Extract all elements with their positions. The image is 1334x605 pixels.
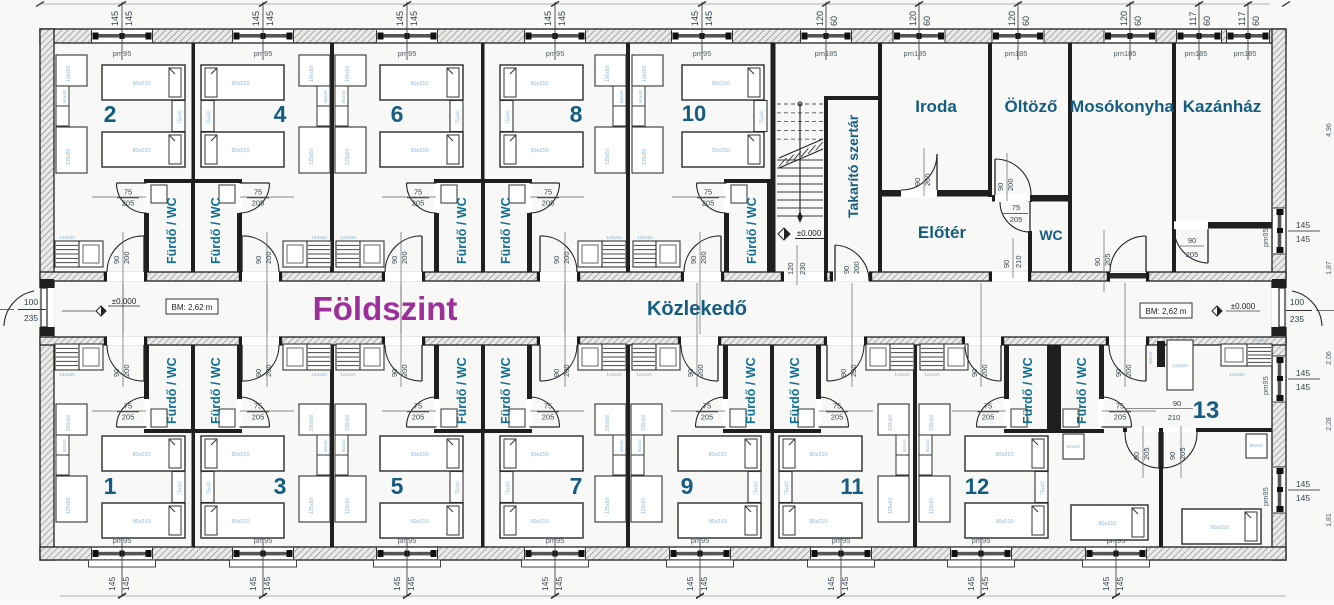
svg-text:Fürdő / WC: Fürdő / WC <box>209 357 223 424</box>
svg-text:WC: WC <box>1039 227 1062 243</box>
svg-text:145: 145 <box>1296 234 1310 244</box>
svg-text:120: 120 <box>786 262 795 275</box>
svg-text:90: 90 <box>112 369 121 377</box>
svg-text:200: 200 <box>852 261 861 274</box>
svg-text:pm95: pm95 <box>398 49 417 58</box>
svg-text:Fürdő / WC: Fürdő / WC <box>499 357 513 424</box>
svg-text:60x40: 60x40 <box>341 90 346 103</box>
svg-text:205: 205 <box>542 413 555 422</box>
svg-text:145: 145 <box>1296 382 1310 392</box>
svg-text:120x60: 120x60 <box>311 372 327 378</box>
svg-text:60x40: 60x40 <box>62 439 67 452</box>
svg-text:pm95: pm95 <box>1261 487 1270 506</box>
svg-text:pm185: pm185 <box>1234 49 1257 58</box>
svg-text:100x60: 100x60 <box>66 65 72 82</box>
svg-text:125x60: 125x60 <box>641 497 647 514</box>
svg-text:60x40: 60x40 <box>341 439 346 452</box>
svg-text:205: 205 <box>1114 413 1127 422</box>
svg-text:205: 205 <box>412 199 425 208</box>
svg-text:±0.000: ±0.000 <box>112 297 137 306</box>
svg-text:100x60: 100x60 <box>66 414 72 431</box>
svg-text:120x60: 120x60 <box>606 372 622 378</box>
svg-text:60: 60 <box>1021 16 1031 26</box>
svg-text:9: 9 <box>681 473 694 499</box>
svg-text:Fürdő / WC: Fürdő / WC <box>744 357 758 424</box>
svg-text:90x210: 90x210 <box>530 81 548 87</box>
svg-text:120: 120 <box>1119 11 1129 26</box>
svg-text:145: 145 <box>107 577 117 591</box>
svg-text:145: 145 <box>248 577 258 591</box>
svg-text:60: 60 <box>1202 16 1212 26</box>
svg-text:Fürdő / WC: Fürdő / WC <box>455 357 469 424</box>
svg-text:75x40: 75x40 <box>456 110 462 124</box>
svg-text:75: 75 <box>414 402 422 411</box>
svg-text:145: 145 <box>690 11 700 26</box>
svg-text:145: 145 <box>265 11 275 26</box>
svg-text:145: 145 <box>699 577 709 591</box>
svg-text:pm185: pm185 <box>1185 49 1208 58</box>
svg-text:BM: 2,62 m: BM: 2,62 m <box>1146 307 1187 316</box>
svg-text:pm185: pm185 <box>815 49 838 58</box>
svg-text:205: 205 <box>412 413 425 422</box>
svg-text:205: 205 <box>982 413 995 422</box>
svg-text:50x25: 50x25 <box>1148 351 1153 364</box>
svg-text:Mosókonyha: Mosókonyha <box>1070 97 1174 116</box>
svg-text:90: 90 <box>552 369 561 377</box>
svg-text:125x60: 125x60 <box>929 497 935 514</box>
svg-text:205: 205 <box>702 199 715 208</box>
svg-text:90: 90 <box>1132 452 1141 460</box>
svg-text:90: 90 <box>552 256 561 264</box>
svg-text:60x40: 60x40 <box>925 439 930 452</box>
svg-text:125x60: 125x60 <box>888 497 894 514</box>
svg-text:8: 8 <box>570 101 583 127</box>
svg-text:10: 10 <box>682 101 706 126</box>
svg-text:60x40: 60x40 <box>619 439 624 452</box>
svg-text:60x40: 60x40 <box>637 439 642 452</box>
svg-text:145: 145 <box>1296 220 1310 230</box>
svg-text:75: 75 <box>703 402 711 411</box>
svg-text:90: 90 <box>254 369 263 377</box>
svg-text:125x60: 125x60 <box>642 148 648 165</box>
svg-text:Fürdő / WC: Fürdő / WC <box>209 197 223 264</box>
svg-text:75: 75 <box>544 188 552 197</box>
svg-text:pm185: pm185 <box>1005 49 1028 58</box>
svg-text:75: 75 <box>124 188 132 197</box>
svg-text:90x210: 90x210 <box>231 148 249 154</box>
svg-text:200: 200 <box>849 364 858 377</box>
svg-text:75x40: 75x40 <box>754 481 760 495</box>
svg-text:75: 75 <box>1116 402 1124 411</box>
svg-text:205: 205 <box>831 413 844 422</box>
svg-text:90x210: 90x210 <box>809 519 827 525</box>
svg-text:145: 145 <box>409 11 419 26</box>
svg-text:90: 90 <box>689 256 698 264</box>
svg-text:90x210: 90x210 <box>132 519 150 525</box>
svg-text:6: 6 <box>391 101 404 127</box>
svg-text:90: 90 <box>842 266 851 274</box>
svg-text:145: 145 <box>251 11 261 26</box>
svg-text:90: 90 <box>913 178 922 186</box>
svg-text:100x60: 100x60 <box>929 414 935 431</box>
svg-text:145: 145 <box>685 577 695 591</box>
svg-text:75: 75 <box>544 402 552 411</box>
svg-text:1,87: 1,87 <box>1326 261 1333 275</box>
svg-text:BM: 2,62 m: BM: 2,62 m <box>172 303 213 312</box>
svg-text:145: 145 <box>121 577 131 591</box>
svg-text:Közlekedő: Közlekedő <box>647 298 747 320</box>
svg-text:145: 145 <box>543 11 553 26</box>
svg-text:125x60: 125x60 <box>66 497 72 514</box>
svg-text:90: 90 <box>1002 260 1011 268</box>
svg-text:Földszint: Földszint <box>313 290 458 327</box>
svg-text:90: 90 <box>839 369 848 377</box>
svg-text:205: 205 <box>1178 447 1187 460</box>
svg-text:100: 100 <box>1290 297 1304 307</box>
svg-text:90x210: 90x210 <box>132 148 150 154</box>
svg-text:60x40: 60x40 <box>638 90 643 103</box>
svg-text:90: 90 <box>390 256 399 264</box>
svg-text:3: 3 <box>274 473 287 499</box>
svg-text:90x210: 90x210 <box>995 519 1013 525</box>
svg-text:90x210: 90x210 <box>410 519 428 525</box>
svg-text:120x60: 120x60 <box>59 372 75 378</box>
svg-text:90x210: 90x210 <box>410 81 428 87</box>
svg-text:200: 200 <box>562 251 571 264</box>
svg-text:145: 145 <box>406 577 416 591</box>
svg-text:90: 90 <box>970 369 979 377</box>
svg-text:Iroda: Iroda <box>915 97 957 116</box>
svg-text:Fürdő / WC: Fürdő / WC <box>165 357 179 424</box>
svg-text:pm95: pm95 <box>546 49 565 58</box>
svg-text:205: 205 <box>1010 215 1023 224</box>
svg-text:90x210: 90x210 <box>132 452 150 458</box>
svg-text:90x210: 90x210 <box>995 452 1013 458</box>
svg-text:13: 13 <box>1193 397 1220 424</box>
svg-text:Fürdő / WC: Fürdő / WC <box>745 197 759 264</box>
svg-text:230: 230 <box>798 262 807 275</box>
svg-text:Fürdő / WC: Fürdő / WC <box>788 357 802 424</box>
svg-text:60: 60 <box>1251 16 1261 26</box>
svg-text:pm185: pm185 <box>1114 49 1137 58</box>
svg-text:75: 75 <box>254 402 262 411</box>
svg-text:145: 145 <box>826 577 836 591</box>
svg-text:205: 205 <box>252 413 265 422</box>
svg-text:75x40: 75x40 <box>506 481 512 495</box>
svg-text:90x210: 90x210 <box>712 81 730 87</box>
svg-text:145: 145 <box>1296 493 1310 503</box>
svg-text:210: 210 <box>1014 255 1023 268</box>
svg-text:75: 75 <box>1012 203 1020 212</box>
svg-text:90: 90 <box>1188 236 1196 245</box>
svg-text:145: 145 <box>392 577 402 591</box>
svg-text:100: 100 <box>24 297 38 307</box>
svg-text:Kazánház: Kazánház <box>1183 97 1261 116</box>
svg-text:7: 7 <box>570 473 583 499</box>
svg-text:205: 205 <box>701 413 714 422</box>
svg-text:210: 210 <box>1168 413 1181 422</box>
svg-text:145: 145 <box>840 577 850 591</box>
svg-text:60x40: 60x40 <box>619 90 624 103</box>
svg-text:100x60: 100x60 <box>888 414 894 431</box>
svg-text:145: 145 <box>1115 577 1125 591</box>
svg-text:60: 60 <box>829 16 839 26</box>
svg-text:100x60: 100x60 <box>642 65 648 82</box>
svg-text:100x60: 100x60 <box>309 65 315 82</box>
svg-text:75x40: 75x40 <box>178 110 184 124</box>
svg-text:90: 90 <box>1168 452 1177 460</box>
svg-text:120x60: 120x60 <box>311 235 327 241</box>
svg-text:100x60: 100x60 <box>345 65 351 82</box>
svg-text:145: 145 <box>966 577 976 591</box>
svg-text:120x60: 120x60 <box>637 235 653 241</box>
svg-text:205: 205 <box>252 199 265 208</box>
svg-text:117: 117 <box>1188 12 1198 26</box>
svg-text:pm95: pm95 <box>113 49 132 58</box>
svg-text:100x60: 100x60 <box>641 414 647 431</box>
svg-text:Fürdő / WC: Fürdő / WC <box>499 197 513 264</box>
svg-text:205: 205 <box>122 413 135 422</box>
svg-text:235: 235 <box>24 313 38 323</box>
svg-text:90x210: 90x210 <box>809 452 827 458</box>
svg-text:Fürdő / WC: Fürdő / WC <box>165 197 179 264</box>
svg-text:Előtér: Előtér <box>918 223 967 242</box>
svg-text:120x60: 120x60 <box>340 372 356 378</box>
svg-text:pm95: pm95 <box>693 49 712 58</box>
svg-text:60: 60 <box>922 16 932 26</box>
svg-text:Takarító szertár: Takarító szertár <box>845 114 861 218</box>
svg-text:145: 145 <box>704 11 714 26</box>
svg-text:145: 145 <box>1101 577 1111 591</box>
svg-text:1,81: 1,81 <box>1326 513 1333 527</box>
svg-text:135x60: 135x60 <box>1172 363 1188 369</box>
svg-text:117: 117 <box>1237 12 1247 26</box>
svg-text:145: 145 <box>262 577 272 591</box>
svg-text:125x60: 125x60 <box>345 497 351 514</box>
svg-text:75: 75 <box>124 402 132 411</box>
svg-text:90x210: 90x210 <box>1210 525 1228 531</box>
svg-text:205: 205 <box>1186 250 1199 259</box>
svg-text:145: 145 <box>540 577 550 591</box>
svg-text:125x60: 125x60 <box>605 148 611 165</box>
svg-text:90x210: 90x210 <box>530 148 548 154</box>
svg-text:145: 145 <box>980 577 990 591</box>
svg-text:90x210: 90x210 <box>231 452 249 458</box>
svg-text:pm185: pm185 <box>904 49 927 58</box>
svg-text:120x60: 120x60 <box>894 372 910 378</box>
svg-text:2: 2 <box>104 101 117 127</box>
svg-text:200: 200 <box>264 251 273 264</box>
svg-text:90: 90 <box>686 369 695 377</box>
svg-text:60x40: 60x40 <box>902 439 907 452</box>
svg-text:120x60: 120x60 <box>59 235 75 241</box>
svg-text:90x210: 90x210 <box>132 81 150 87</box>
svg-text:±0.000: ±0.000 <box>797 229 822 238</box>
svg-text:2,06: 2,06 <box>1326 351 1333 365</box>
svg-text:200: 200 <box>562 364 571 377</box>
svg-text:Fürdő / WC: Fürdő / WC <box>1075 357 1089 424</box>
svg-text:60x40: 60x40 <box>323 439 328 452</box>
svg-text:2,28: 2,28 <box>1326 417 1333 431</box>
svg-text:120x60: 120x60 <box>1252 338 1268 344</box>
svg-text:75x40: 75x40 <box>456 481 462 495</box>
svg-text:Fürdő / WC: Fürdő / WC <box>455 197 469 264</box>
svg-text:145: 145 <box>1296 479 1310 489</box>
svg-text:75x40: 75x40 <box>207 481 213 495</box>
svg-text:120x60: 120x60 <box>924 372 940 378</box>
svg-text:±0.000: ±0.000 <box>1231 302 1256 311</box>
svg-text:145: 145 <box>110 11 120 26</box>
svg-text:90x210: 90x210 <box>708 452 726 458</box>
svg-text:120x60: 120x60 <box>340 235 356 241</box>
svg-text:120x60: 120x60 <box>606 235 622 241</box>
svg-text:120x60: 120x60 <box>636 372 652 378</box>
svg-text:90: 90 <box>254 256 263 264</box>
svg-text:100x60: 100x60 <box>309 414 315 431</box>
svg-text:75: 75 <box>254 188 262 197</box>
svg-text:60x40: 60x40 <box>323 90 328 103</box>
svg-text:60: 60 <box>1133 16 1143 26</box>
svg-text:80x210: 80x210 <box>1098 521 1116 527</box>
svg-text:85x60: 85x60 <box>1249 443 1262 449</box>
svg-text:145: 145 <box>554 577 564 591</box>
svg-text:75: 75 <box>704 188 712 197</box>
svg-text:205: 205 <box>122 199 135 208</box>
svg-text:145: 145 <box>1296 368 1310 378</box>
svg-text:75x40: 75x40 <box>207 110 213 124</box>
svg-text:125x60: 125x60 <box>309 497 315 514</box>
svg-text:125x60: 125x60 <box>345 148 351 165</box>
svg-text:90x210: 90x210 <box>530 452 548 458</box>
svg-text:235: 235 <box>1290 314 1304 324</box>
svg-text:120: 120 <box>908 11 918 26</box>
svg-text:90: 90 <box>390 369 399 377</box>
svg-text:75x40: 75x40 <box>785 481 791 495</box>
svg-text:200: 200 <box>264 364 273 377</box>
svg-text:100x60: 100x60 <box>605 65 611 82</box>
svg-text:4: 4 <box>274 101 287 127</box>
svg-text:75: 75 <box>833 402 841 411</box>
svg-text:pm95: pm95 <box>1261 228 1270 247</box>
svg-text:120x60: 120x60 <box>1229 372 1245 378</box>
svg-text:75: 75 <box>414 188 422 197</box>
svg-text:12: 12 <box>965 474 989 499</box>
svg-text:Öltöző: Öltöző <box>1005 97 1058 116</box>
svg-text:90: 90 <box>996 183 1005 191</box>
svg-text:120: 120 <box>1007 11 1017 26</box>
svg-text:75: 75 <box>984 402 992 411</box>
svg-text:4,96: 4,96 <box>1326 123 1333 137</box>
svg-text:90: 90 <box>1093 258 1102 266</box>
svg-text:90x210: 90x210 <box>231 81 249 87</box>
svg-text:Fürdő / WC: Fürdő / WC <box>1021 357 1035 424</box>
svg-text:145: 145 <box>395 11 405 26</box>
svg-text:75x40: 75x40 <box>1041 481 1047 495</box>
svg-text:75x40: 75x40 <box>506 110 512 124</box>
svg-text:90: 90 <box>112 256 121 264</box>
svg-text:205: 205 <box>542 199 555 208</box>
svg-text:90: 90 <box>1114 369 1123 377</box>
svg-text:1: 1 <box>104 473 117 499</box>
svg-text:100x60: 100x60 <box>345 414 351 431</box>
svg-text:145: 145 <box>557 11 567 26</box>
svg-text:90: 90 <box>1173 399 1181 408</box>
svg-text:145: 145 <box>124 11 134 26</box>
svg-text:11: 11 <box>840 474 863 499</box>
svg-text:90x210: 90x210 <box>410 452 428 458</box>
svg-text:90x210: 90x210 <box>712 148 730 154</box>
svg-text:pm95: pm95 <box>1261 376 1270 395</box>
svg-text:75x40: 75x40 <box>760 110 766 124</box>
svg-text:90x210: 90x210 <box>708 519 726 525</box>
svg-text:120: 120 <box>815 11 825 26</box>
svg-text:125x60: 125x60 <box>309 148 315 165</box>
svg-text:100x60: 100x60 <box>605 414 611 431</box>
svg-text:90x210: 90x210 <box>530 519 548 525</box>
svg-text:pm95: pm95 <box>254 49 273 58</box>
svg-text:75x40: 75x40 <box>178 481 184 495</box>
svg-text:50x60: 50x60 <box>1066 444 1079 450</box>
svg-text:90x210: 90x210 <box>410 148 428 154</box>
svg-text:125x60: 125x60 <box>66 148 72 165</box>
svg-text:90x210: 90x210 <box>231 519 249 525</box>
svg-text:5: 5 <box>391 473 404 499</box>
svg-text:60x40: 60x40 <box>62 90 67 103</box>
svg-text:125x60: 125x60 <box>605 497 611 514</box>
